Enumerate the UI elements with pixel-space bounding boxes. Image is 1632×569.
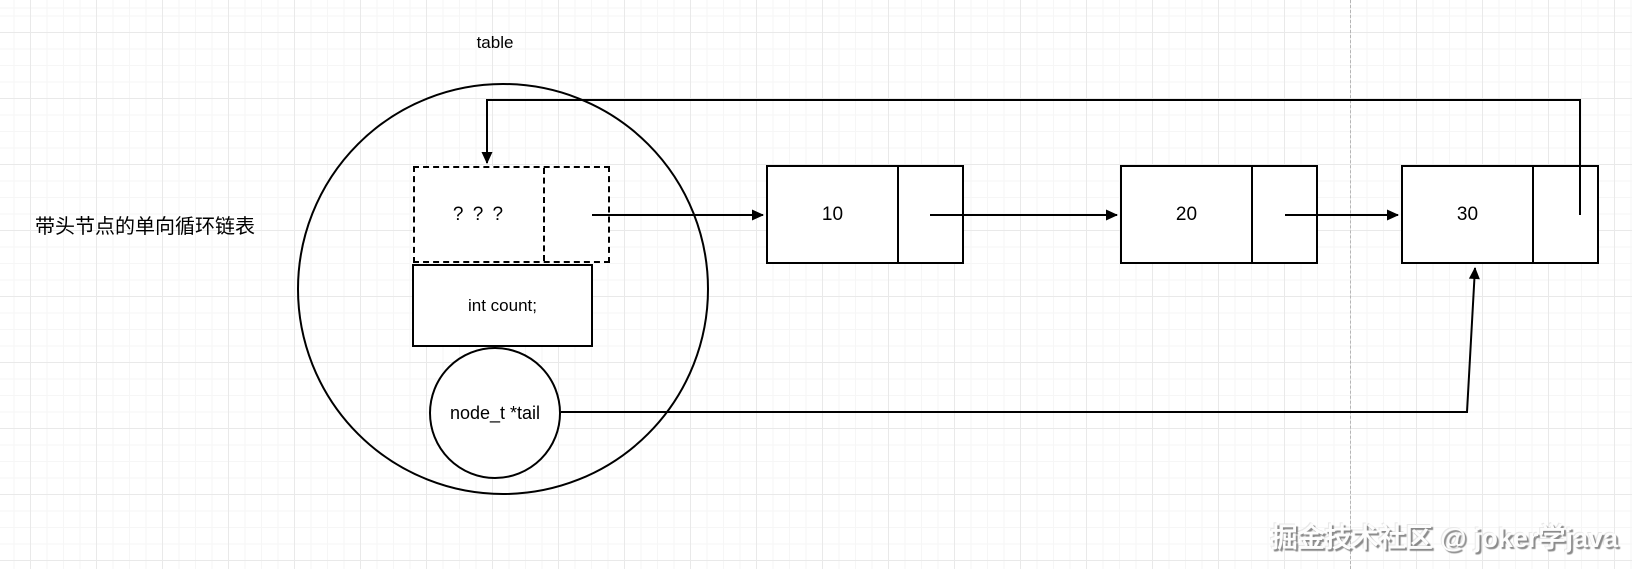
node-value: 30 <box>1403 167 1532 262</box>
list-node-10: 10 <box>766 165 964 264</box>
watermark-text: 掘金技术社区 @ joker学java <box>1271 516 1618 555</box>
connector-arrows-layer <box>0 0 1632 569</box>
page-boundary-line <box>1350 0 1351 569</box>
head-node-data-cell: ? ? ? <box>415 168 543 261</box>
count-field-box: int count; <box>412 264 593 347</box>
node-next-cell <box>1532 167 1597 262</box>
table-pointer-label: table <box>430 33 560 53</box>
node-next-cell <box>1251 167 1316 262</box>
node-value: 20 <box>1122 167 1251 262</box>
node-value: 10 <box>768 167 897 262</box>
head-node-box: ? ? ? <box>413 166 610 263</box>
list-node-30: 30 <box>1401 165 1599 264</box>
diagram-canvas: table 带头节点的单向循环链表 ? ? ? int count; node_… <box>0 0 1632 569</box>
list-node-20: 20 <box>1120 165 1318 264</box>
node-next-cell <box>897 167 962 262</box>
tail-pointer-circle: node_t *tail <box>429 347 561 479</box>
head-node-next-cell <box>543 168 608 261</box>
diagram-title: 带头节点的单向循环链表 <box>35 210 255 239</box>
